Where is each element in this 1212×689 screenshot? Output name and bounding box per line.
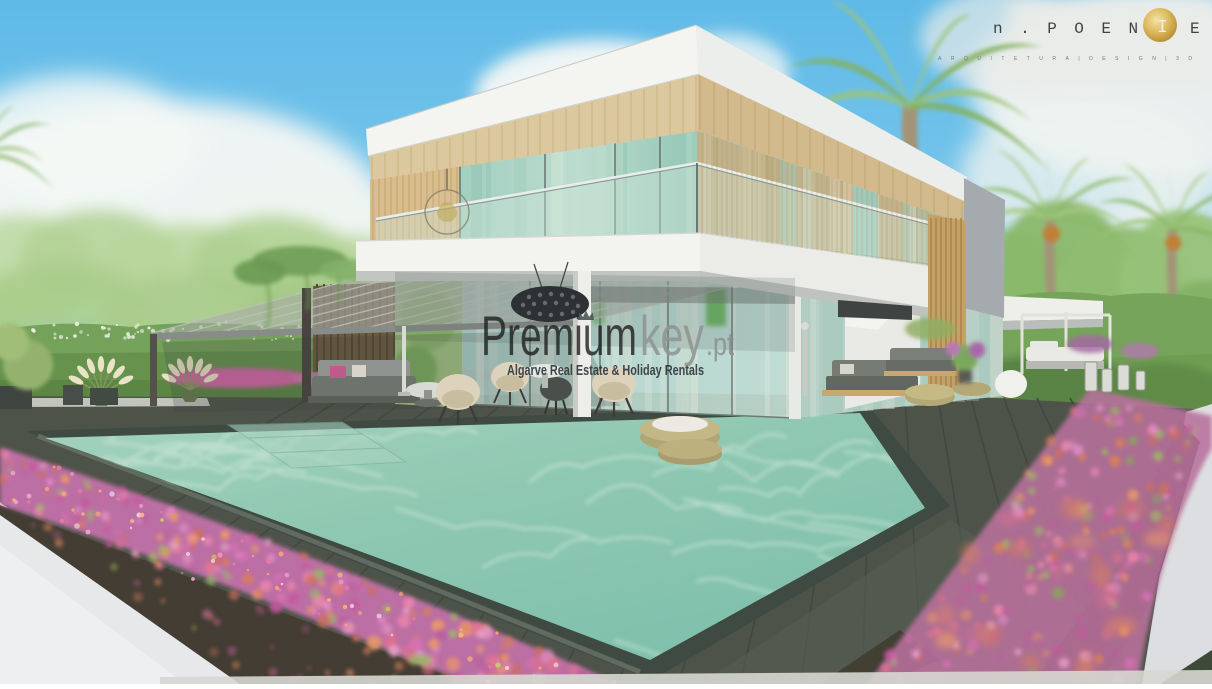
svg-text:n.POEN: n.POEN <box>993 20 1156 38</box>
svg-text:.pt: .pt <box>706 326 734 362</box>
svg-text:Algarve Real Estate & Holida: Algarve Real Estate & Holiday Rentals <box>507 363 704 379</box>
svg-text:I: I <box>1157 18 1168 38</box>
svg-text:key: key <box>640 304 704 367</box>
svg-text:Premium: Premium <box>481 304 637 367</box>
svg-text:ARQUITETURA|DESIGN|3D: ARQUITETURA|DESIGN|3D <box>938 56 1202 62</box>
svg-text:E: E <box>1190 20 1200 38</box>
